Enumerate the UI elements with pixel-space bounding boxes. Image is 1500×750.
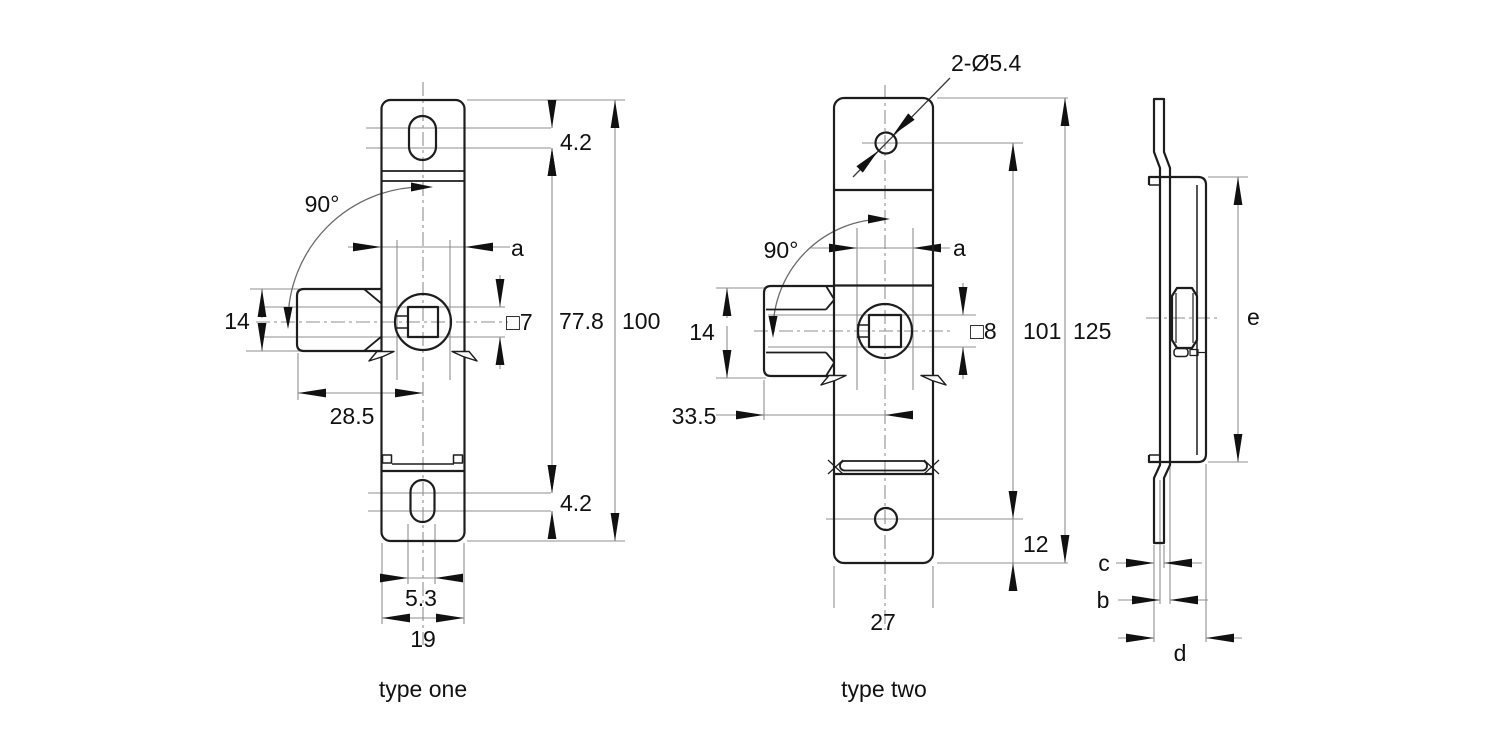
side-nut-detail (1174, 349, 1188, 357)
side-part (1149, 99, 1206, 543)
dim-side-depth-d: d (1174, 640, 1187, 666)
type-two-angle-arc (773, 219, 885, 331)
dim-side-thickness-c: c (1098, 550, 1110, 576)
view-type-two: 2-Ø5.4 90° a 14 □8 101 125 33.5 12 27 ty… (672, 50, 1112, 702)
side-extension-lines (1154, 177, 1248, 642)
view-side: e c b d (1097, 99, 1260, 666)
dim-t2-angle: 90° (764, 237, 799, 263)
dim-t1-angle: 90° (305, 191, 340, 217)
dim-t2-bolt-height: 14 (689, 319, 715, 345)
dim-t1-width-a: a (511, 235, 524, 261)
dim-t2-hole-to-step: 101 (1023, 318, 1061, 344)
side-plate-strip (1154, 99, 1170, 543)
dim-t2-bolt-length: 33.5 (672, 403, 717, 429)
dim-t2-width-a: a (953, 235, 966, 261)
type-two-latch-bar (840, 461, 927, 471)
dim-t1-bottom-slot-offset: 4.2 (560, 490, 592, 516)
type-one-extension-lines (246, 100, 625, 624)
view-type-one: 4.2 90° a 14 □7 77.8 100 28.5 4.2 5.3 19… (224, 82, 660, 702)
dim-t1-total-height: 100 (622, 308, 660, 334)
dim-t1-top-slot-offset: 4.2 (560, 129, 592, 155)
dim-side-height-e: e (1247, 304, 1260, 330)
dim-t2-square-hole: □8 (970, 318, 997, 344)
dim-t1-slot-centers: 77.8 (559, 308, 604, 334)
dim-side-thickness-b: b (1097, 587, 1110, 613)
dim-t1-plate-width: 19 (410, 626, 436, 652)
type-two-centerlines (754, 85, 952, 630)
dim-t1-slot-width: 5.3 (405, 585, 437, 611)
dim-t1-square-hole: □7 (506, 309, 533, 335)
drawing-canvas: 4.2 90° a 14 □7 77.8 100 28.5 4.2 5.3 19… (0, 0, 1500, 750)
type-two-caption: type two (841, 676, 927, 702)
type-one-caption: type one (379, 676, 467, 702)
technical-drawing: 4.2 90° a 14 □7 77.8 100 28.5 4.2 5.3 19… (0, 0, 1500, 750)
dim-t2-mount-holes: 2-Ø5.4 (951, 50, 1022, 76)
type-two-dimension-lines (716, 98, 1065, 589)
type-one-bolt (297, 289, 382, 351)
dim-t1-bolt-length: 28.5 (330, 403, 375, 429)
dim-t2-total-height: 125 (1073, 318, 1111, 344)
dim-t2-plate-width: 27 (870, 609, 896, 635)
dim-t1-bolt-height: 14 (224, 308, 250, 334)
side-dimension-lines (1116, 177, 1242, 638)
dim-t2-bottom-offset: 12 (1023, 531, 1049, 557)
type-one-part (297, 100, 477, 541)
